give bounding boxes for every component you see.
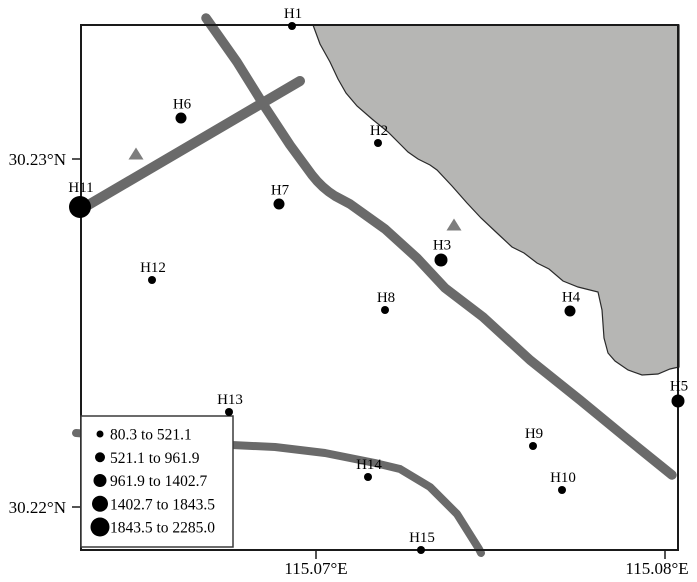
station-point (381, 306, 389, 314)
legend: 80.3 to 521.1521.1 to 961.9961.9 to 1402… (81, 416, 233, 547)
legend-size-dot (92, 496, 108, 512)
legend-item-label: 1843.5 to 2285.0 (110, 520, 215, 537)
station-point (288, 22, 296, 30)
station-label: H10 (550, 470, 576, 486)
station-point (672, 395, 685, 408)
y-axis-tick-label: 30.22°N (9, 498, 66, 517)
station-label: H11 (68, 180, 93, 196)
station-label: H5 (670, 379, 688, 395)
map-canvas: 30.23°N30.22°N115.07°E115.08°E 80.3 to 5… (0, 0, 697, 582)
station-label: H4 (562, 290, 581, 306)
legend-size-dot (91, 518, 110, 537)
x-axis-tick-label: 115.07°E (284, 559, 347, 578)
station-point (435, 254, 448, 267)
legend-item-label: 961.9 to 1402.7 (110, 473, 208, 490)
legend-item-label: 521.1 to 961.9 (110, 450, 200, 467)
station-point (374, 139, 382, 147)
station-point (364, 473, 372, 481)
legend-item-label: 1402.7 to 1843.5 (110, 496, 215, 513)
triangle-icon (447, 219, 462, 231)
sampling-station-map: 30.23°N30.22°N115.07°E115.08°E 80.3 to 5… (0, 0, 697, 582)
station-point (69, 196, 91, 218)
station-label: H14 (356, 457, 382, 473)
station-label: H8 (377, 290, 395, 306)
x-axis-tick-label: 115.08°E (625, 559, 688, 578)
station-label: H1 (284, 6, 302, 22)
station-label: H13 (217, 392, 243, 408)
station-label: H6 (173, 97, 192, 113)
station-point (148, 276, 156, 284)
station-label: H3 (433, 238, 451, 254)
station-point (529, 442, 537, 450)
station-point (558, 486, 566, 494)
triangle-markers (129, 148, 462, 231)
station-point (176, 113, 187, 124)
station-label: H15 (409, 530, 435, 546)
legend-item-label: 80.3 to 521.1 (110, 427, 192, 444)
triangle-icon (129, 148, 144, 160)
station-label: H2 (370, 123, 388, 139)
station-point (417, 546, 425, 554)
station-label: H9 (525, 426, 543, 442)
station-point (225, 408, 233, 416)
y-axis-tick-label: 30.23°N (9, 150, 66, 169)
legend-size-dot (94, 474, 107, 487)
station-label: H7 (271, 183, 290, 199)
legend-size-dot (95, 452, 105, 462)
station-point (565, 306, 576, 317)
station-label: H12 (140, 260, 166, 276)
station-point (274, 199, 285, 210)
legend-size-dot (97, 431, 104, 438)
